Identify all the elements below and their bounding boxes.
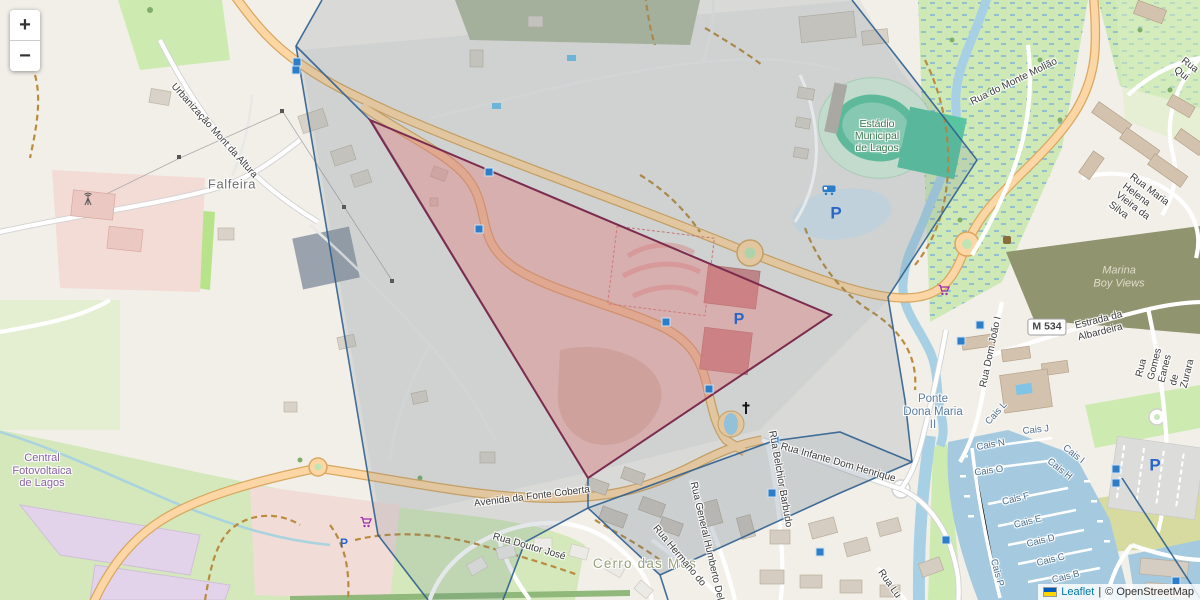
attribution-bar: Leaflet | © OpenStreetMap <box>1038 584 1200 600</box>
ukraine-flag-icon <box>1043 587 1057 597</box>
attribution-separator: | <box>1098 586 1101 598</box>
zoom-out-button[interactable]: − <box>10 41 40 71</box>
zoom-in-button[interactable]: + <box>10 10 40 41</box>
base-map <box>0 0 1200 600</box>
leaflet-link[interactable]: Leaflet <box>1061 586 1094 598</box>
openstreetmap-link[interactable]: © OpenStreetMap <box>1105 586 1194 598</box>
zoom-control: + − <box>10 10 40 71</box>
map-canvas[interactable]: PPPP FalfeiraUrbanização Mont da AlturaE… <box>0 0 1200 600</box>
